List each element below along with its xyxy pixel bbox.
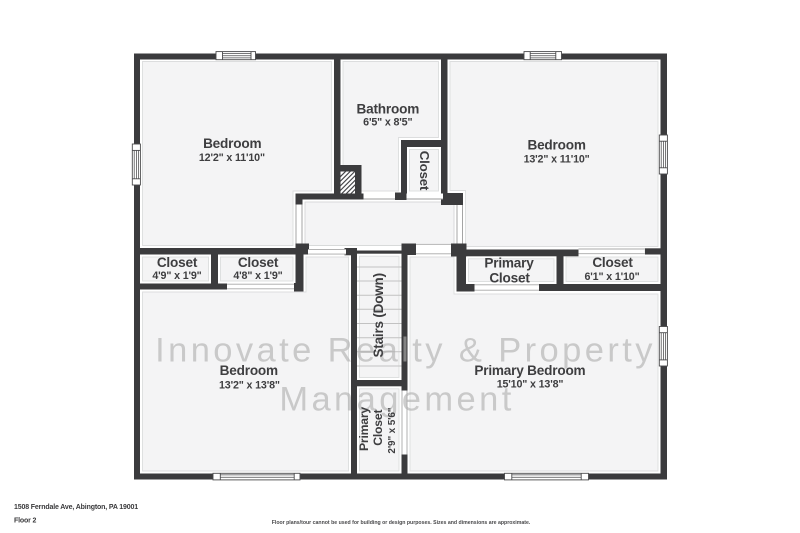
- svg-text:Closet: Closet: [157, 255, 198, 270]
- svg-text:Bedroom: Bedroom: [220, 363, 278, 378]
- svg-text:Closet: Closet: [417, 151, 432, 191]
- svg-text:13'2" x 11'10": 13'2" x 11'10": [524, 154, 590, 166]
- svg-text:Bathroom: Bathroom: [357, 102, 420, 117]
- svg-text:Floor 2: Floor 2: [14, 517, 37, 524]
- svg-text:Closet: Closet: [238, 255, 279, 270]
- svg-text:Primary: Primary: [357, 407, 371, 451]
- svg-text:1508 Ferndale Ave, Abington, P: 1508 Ferndale Ave, Abington, PA 19001: [14, 504, 138, 511]
- svg-text:Primary Bedroom: Primary Bedroom: [474, 363, 585, 378]
- svg-text:Bedroom: Bedroom: [527, 138, 585, 153]
- svg-text:Bedroom: Bedroom: [203, 136, 261, 151]
- svg-text:6'1" x 1'10": 6'1" x 1'10": [584, 271, 639, 283]
- svg-text:15'10" x 13'8": 15'10" x 13'8": [497, 378, 564, 390]
- svg-text:4'9" x 1'9": 4'9" x 1'9": [152, 270, 201, 282]
- svg-text:12'2" x 11'10": 12'2" x 11'10": [199, 152, 265, 164]
- svg-text:Closet: Closet: [489, 270, 530, 285]
- svg-text:Closet: Closet: [592, 255, 633, 270]
- svg-text:Closet: Closet: [371, 410, 385, 446]
- svg-text:2'9" x 5'6": 2'9" x 5'6": [387, 407, 398, 453]
- svg-text:Primary: Primary: [484, 256, 534, 271]
- svg-text:Floor plans/tour cannot be use: Floor plans/tour cannot be used for buil…: [272, 520, 531, 526]
- svg-text:4'8" x 1'9": 4'8" x 1'9": [233, 270, 282, 282]
- svg-text:Stairs (Down): Stairs (Down): [371, 273, 386, 357]
- svg-text:6'5" x 8'5": 6'5" x 8'5": [363, 116, 412, 128]
- svg-text:13'2" x 13'8": 13'2" x 13'8": [219, 380, 280, 392]
